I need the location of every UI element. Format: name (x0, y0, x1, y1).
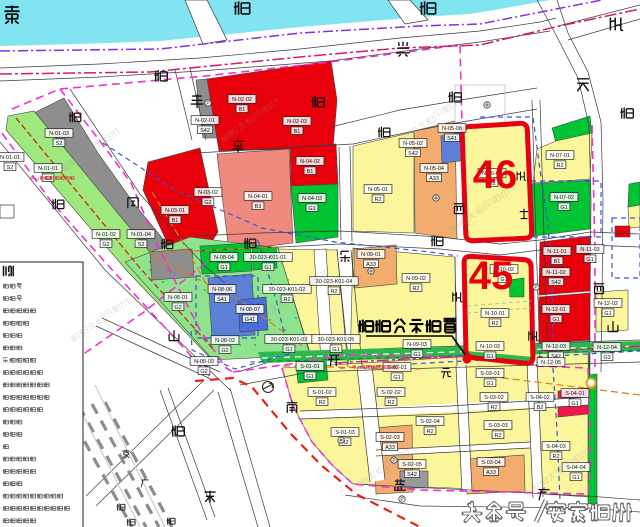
svg-text:N-11-02: N-11-02 (546, 270, 565, 276)
svg-text:S-02-05: S-02-05 (402, 462, 422, 468)
svg-text:G1: G1 (572, 475, 579, 481)
svg-text:R2: R2 (318, 400, 325, 406)
svg-text:N-05-02: N-05-02 (403, 141, 423, 147)
svg-text:N-08-01: N-08-01 (168, 295, 188, 301)
svg-text:R2: R2 (494, 433, 501, 439)
svg-text:N-08-07: N-08-07 (240, 307, 260, 313)
svg-text:N-12-05: N-12-05 (541, 360, 561, 366)
svg-text:30-023-K01-04: 30-023-K01-04 (316, 279, 353, 285)
svg-text:B1: B1 (307, 169, 314, 175)
svg-text:A33: A33 (429, 176, 439, 182)
svg-text:G2: G2 (221, 348, 228, 354)
svg-text:N-03-01: N-03-01 (165, 208, 185, 214)
svg-text:N-01-01: N-01-01 (0, 155, 20, 161)
svg-text:S42: S42 (200, 128, 210, 134)
svg-text:S-03-03: S-03-03 (488, 423, 508, 429)
svg-text:N-05-08: N-05-08 (442, 126, 462, 132)
svg-text:S-02-03: S-02-03 (380, 435, 400, 441)
svg-text:G1: G1 (413, 352, 420, 358)
svg-text:R2: R2 (387, 400, 394, 406)
svg-text:S-04-02: S-04-02 (530, 395, 550, 401)
svg-text:N-11-03: N-11-03 (580, 247, 599, 253)
svg-text:A33: A33 (385, 445, 395, 451)
svg-text:G1: G1 (604, 311, 611, 317)
svg-text:S42: S42 (407, 472, 417, 478)
svg-text:46: 46 (473, 153, 518, 197)
svg-text:30-023-K01-03: 30-023-K01-03 (271, 337, 308, 343)
svg-text:N-01-01: N-01-01 (38, 166, 58, 172)
svg-text:N-02-02: N-02-02 (232, 97, 252, 103)
svg-text:G2: G2 (204, 200, 211, 206)
svg-text:N-05-01: N-05-01 (368, 187, 388, 193)
svg-text:S41: S41 (447, 136, 457, 142)
svg-text:N-09-02: N-09-02 (406, 276, 426, 282)
svg-text:N-10-03: N-10-03 (480, 344, 500, 350)
svg-text:N-07-01: N-07-01 (550, 153, 570, 159)
svg-text:G1: G1 (486, 354, 493, 360)
svg-text:G2: G2 (102, 242, 109, 248)
svg-text:N-12-01: N-12-01 (546, 307, 566, 313)
svg-text:G1: G1 (285, 347, 292, 353)
svg-text:N-04-03: N-04-03 (302, 196, 322, 202)
svg-text:S2: S2 (138, 242, 145, 248)
svg-text:A33: A33 (366, 262, 376, 268)
svg-text:R2: R2 (330, 289, 337, 295)
svg-text:N-01-03: N-01-03 (49, 131, 69, 137)
svg-text:N-08-06: N-08-06 (212, 287, 232, 293)
svg-text:G1: G1 (306, 374, 313, 380)
svg-text:R2: R2 (412, 286, 419, 292)
svg-text:R2: R2 (552, 454, 559, 460)
svg-text:S-01-02: S-01-02 (312, 390, 332, 396)
svg-text:S42: S42 (408, 151, 418, 157)
svg-text:N-09-01: N-09-01 (361, 252, 381, 258)
svg-text:S-04-01: S-04-01 (565, 391, 585, 397)
svg-text:N-11-01: N-11-01 (547, 249, 566, 255)
svg-text:S-01-01: S-01-01 (300, 364, 320, 370)
svg-text:N-12-03: N-12-03 (546, 344, 566, 350)
svg-text:B1: B1 (294, 129, 301, 135)
svg-text:N-04-02: N-04-02 (300, 159, 320, 165)
svg-text:R2: R2 (556, 163, 563, 169)
svg-text:N-02-01: N-02-01 (195, 118, 215, 124)
svg-text:S-04-03: S-04-03 (546, 444, 566, 450)
svg-text:N-08-09: N-08-09 (194, 359, 214, 365)
svg-text:G2: G2 (200, 369, 207, 375)
svg-text:S-03-01: S-03-01 (480, 371, 500, 377)
svg-text:G41: G41 (245, 317, 255, 323)
svg-text:G1: G1 (560, 205, 567, 211)
svg-text:R2: R2 (426, 429, 433, 435)
svg-text:G1: G1 (308, 206, 315, 212)
svg-text:B1: B1 (172, 218, 179, 224)
svg-text:N-08-04: N-08-04 (214, 255, 234, 261)
svg-text:G1: G1 (264, 265, 271, 271)
svg-text:N-08-02: N-08-02 (215, 338, 235, 344)
svg-text:B3: B3 (255, 204, 262, 210)
svg-text:R2: R2 (490, 405, 497, 411)
svg-text:B2: B2 (537, 405, 544, 411)
svg-text:G1: G1 (220, 265, 227, 271)
svg-text:N-12-04: N-12-04 (597, 345, 617, 351)
svg-text:S-02-02: S-02-02 (381, 390, 401, 396)
svg-text:B1: B1 (554, 259, 561, 265)
svg-text:S2: S2 (7, 165, 14, 171)
svg-text:G1: G1 (552, 317, 559, 323)
svg-text:N-07-02: N-07-02 (554, 195, 574, 201)
svg-text:N-03-02: N-03-02 (198, 190, 218, 196)
svg-text:G1: G1 (486, 381, 493, 387)
svg-text:N-01-04: N-01-04 (131, 232, 151, 238)
svg-text:S-03-04: S-03-04 (481, 460, 501, 466)
svg-text:N-12-02: N-12-02 (598, 301, 618, 307)
svg-text:S-01-03: S-01-03 (335, 430, 355, 436)
svg-text:N-05-04: N-05-04 (424, 166, 444, 172)
svg-text:G1: G1 (586, 257, 593, 263)
svg-text:S2: S2 (56, 141, 63, 147)
svg-text:G1: G1 (393, 375, 400, 381)
svg-text:N-09-03: N-09-03 (407, 342, 427, 348)
svg-text:S-03-02: S-03-02 (484, 395, 504, 401)
svg-text:S-02-01: S-02-01 (387, 365, 407, 371)
svg-text:S-02-04: S-02-04 (420, 419, 440, 425)
svg-text:G2: G2 (174, 305, 181, 311)
svg-text:B1: B1 (239, 107, 246, 113)
svg-text:N-10-01: N-10-01 (485, 311, 505, 317)
svg-text:S42: S42 (551, 280, 561, 286)
svg-text:G1: G1 (332, 347, 339, 353)
svg-text:N-02-03: N-02-03 (287, 119, 307, 125)
svg-text:45: 45 (469, 254, 514, 298)
svg-text:G3: G3 (603, 355, 610, 361)
svg-text:S41: S41 (217, 297, 227, 303)
svg-text:30-023-K01-05: 30-023-K01-05 (318, 337, 355, 343)
svg-text:30-023-K01-01: 30-023-K01-01 (250, 255, 287, 261)
svg-text:G1: G1 (571, 401, 578, 407)
svg-text:N-04-01: N-04-01 (248, 194, 268, 200)
svg-text:N-01-02: N-01-02 (96, 232, 116, 238)
svg-text:A33: A33 (486, 470, 496, 476)
svg-text:R2: R2 (374, 197, 381, 203)
svg-text:R2: R2 (491, 321, 498, 327)
